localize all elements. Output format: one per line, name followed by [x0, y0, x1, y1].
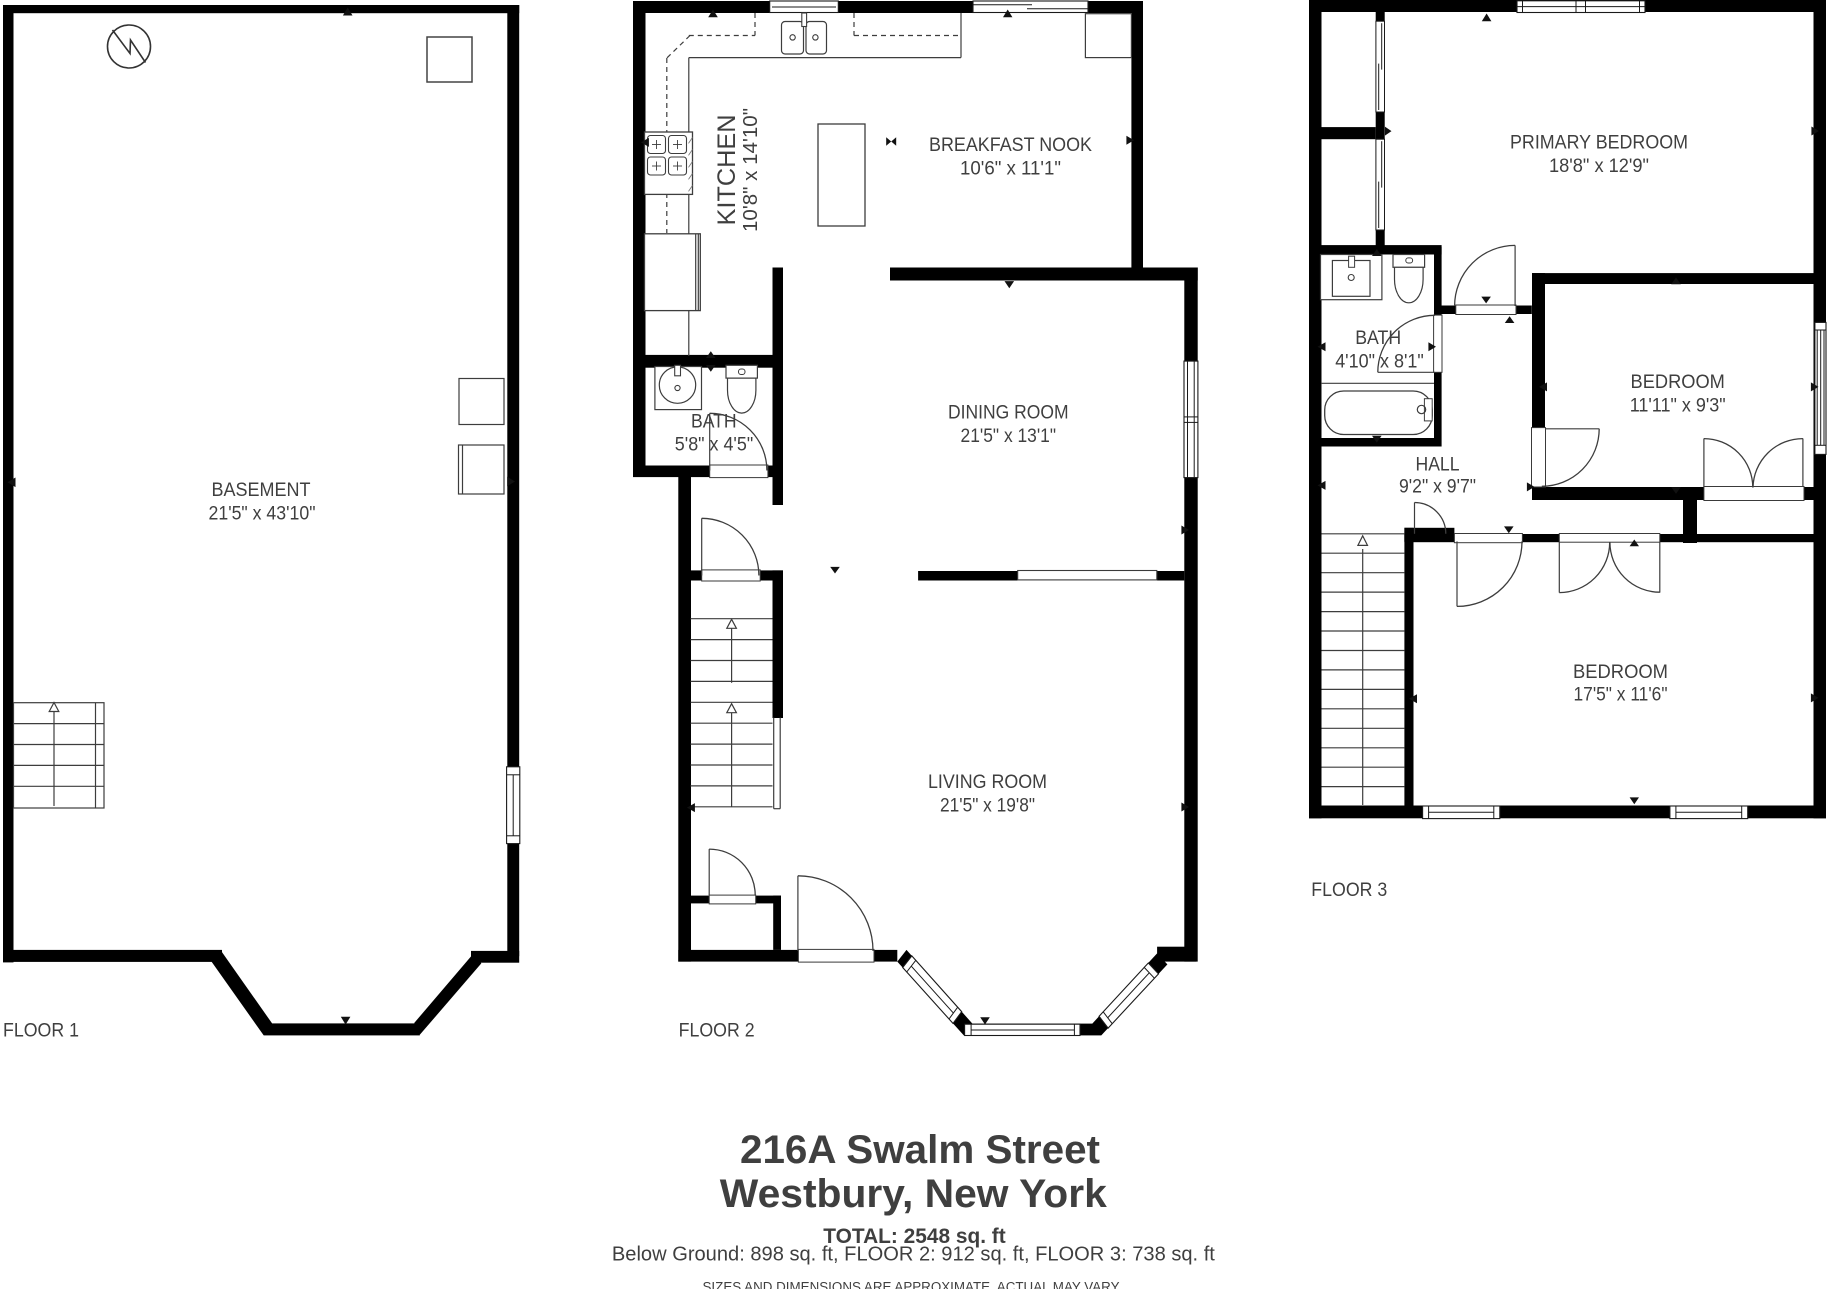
svg-text:18'8" x 12'9": 18'8" x 12'9"	[1549, 156, 1649, 177]
svg-text:21'5" x 43'10": 21'5" x 43'10"	[209, 504, 316, 525]
svg-text:4'10" x 8'1": 4'10" x 8'1"	[1335, 352, 1424, 373]
svg-text:10'6" x 11'1": 10'6" x 11'1"	[960, 159, 1061, 180]
svg-text:9'2" x 9'7": 9'2" x 9'7"	[1399, 477, 1476, 498]
svg-text:BASEMENT: BASEMENT	[212, 480, 311, 501]
svg-text:DINING ROOM: DINING ROOM	[948, 403, 1069, 424]
svg-text:5'8" x 4'5": 5'8" x 4'5"	[675, 434, 753, 455]
svg-text:BATH: BATH	[691, 412, 737, 433]
svg-text:17'5" x 11'6": 17'5" x 11'6"	[1574, 685, 1668, 706]
svg-text:21'5" x 19'8": 21'5" x 19'8"	[940, 796, 1035, 817]
svg-text:FLOOR 3: FLOOR 3	[1311, 880, 1387, 901]
svg-text:BEDROOM: BEDROOM	[1631, 372, 1725, 393]
svg-text:HALL: HALL	[1416, 455, 1460, 476]
svg-text:KITCHEN: KITCHEN	[713, 115, 741, 226]
svg-text:BREAKFAST NOOK: BREAKFAST NOOK	[929, 135, 1092, 156]
svg-text:SIZES AND DIMENSIONS ARE APPRO: SIZES AND DIMENSIONS ARE APPROXIMATE, AC…	[703, 1280, 1122, 1289]
svg-text:PRIMARY BEDROOM: PRIMARY BEDROOM	[1510, 133, 1688, 154]
svg-text:10'8" x 14'10": 10'8" x 14'10"	[739, 108, 762, 232]
svg-text:LIVING ROOM: LIVING ROOM	[928, 772, 1047, 793]
svg-text:FLOOR 2: FLOOR 2	[679, 1021, 755, 1042]
svg-text:FLOOR 1: FLOOR 1	[3, 1021, 79, 1042]
svg-text:11'11" x 9'3": 11'11" x 9'3"	[1630, 396, 1726, 417]
svg-text:21'5" x 13'1": 21'5" x 13'1"	[961, 426, 1057, 447]
svg-text:BEDROOM: BEDROOM	[1573, 662, 1668, 683]
svg-text:BATH: BATH	[1355, 328, 1401, 349]
svg-text:Below Ground: 898 sq. ft, FLOO: Below Ground: 898 sq. ft, FLOOR 2: 912 s…	[612, 1243, 1215, 1265]
svg-text:216A Swalm Street: 216A Swalm Street	[740, 1128, 1100, 1172]
svg-text:Westbury, New York: Westbury, New York	[720, 1172, 1108, 1216]
